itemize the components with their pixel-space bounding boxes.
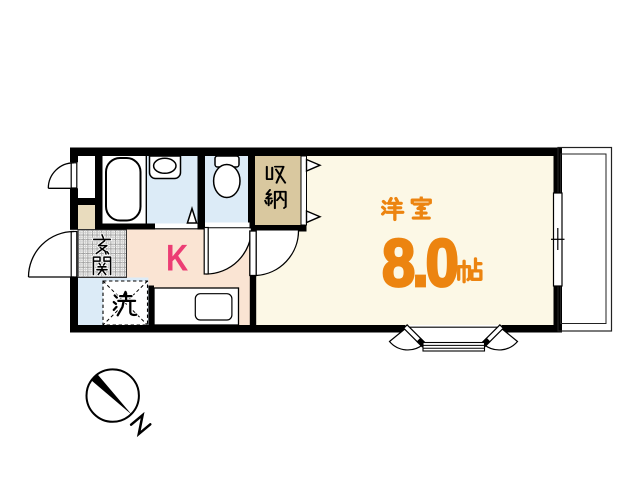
svg-text:8.0: 8.0 [382, 227, 459, 301]
svg-text:K: K [166, 238, 188, 280]
